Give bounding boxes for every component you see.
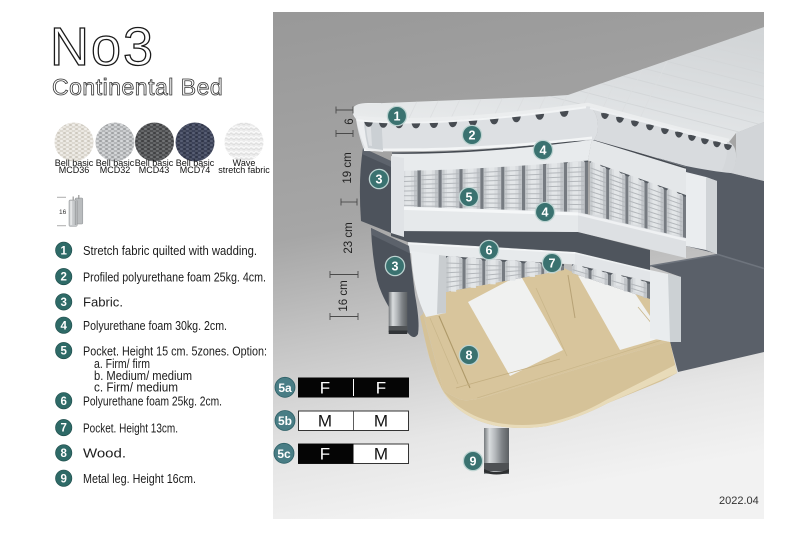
svg-text:M: M [318,412,332,431]
svg-text:F: F [320,445,330,464]
svg-text:F: F [376,379,386,398]
svg-text:M: M [374,412,388,431]
svg-text:5b: 5b [278,414,292,428]
svg-text:F: F [320,379,330,398]
svg-text:M: M [374,445,388,464]
svg-text:5a: 5a [278,381,292,395]
svg-text:5c: 5c [277,447,291,461]
